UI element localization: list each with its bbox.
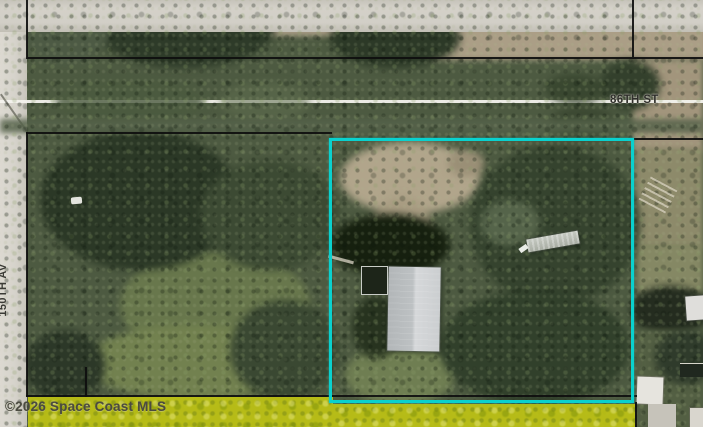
mls-watermark: ©2026 Space Coast MLS [5,399,166,414]
parcel-line-west-upper [26,0,28,57]
parcel-line-south-of-road-left [26,132,332,134]
horizontal-road-86th-st [0,0,703,32]
map-canvas[interactable]: 86TH ST 150TH AV ©2026 Space Coast MLS [0,0,703,427]
vertical-road [0,0,27,427]
neighbor-roof-3 [685,295,703,320]
neighbor-driveway [648,404,676,427]
parcel-line-west-lower [26,132,28,397]
yellow-strip-right [333,404,635,427]
parcel-line-north [26,57,703,59]
small-vehicle [71,197,83,205]
parcel-line-south-of-road-right [633,138,703,140]
parcel-line-east-upper [632,0,634,57]
neighbor-structure-shadow [680,363,703,377]
street-label-150th-av: 150TH AV [0,258,11,322]
neighbor-roof-1 [637,377,664,405]
parcel-line-stub [85,367,87,397]
neighbor-roof-2 [690,408,703,427]
street-label-86th-st: 86TH ST [610,94,659,106]
selected-parcel-boundary [329,138,634,403]
parcel-line-east-bottom [635,402,637,427]
